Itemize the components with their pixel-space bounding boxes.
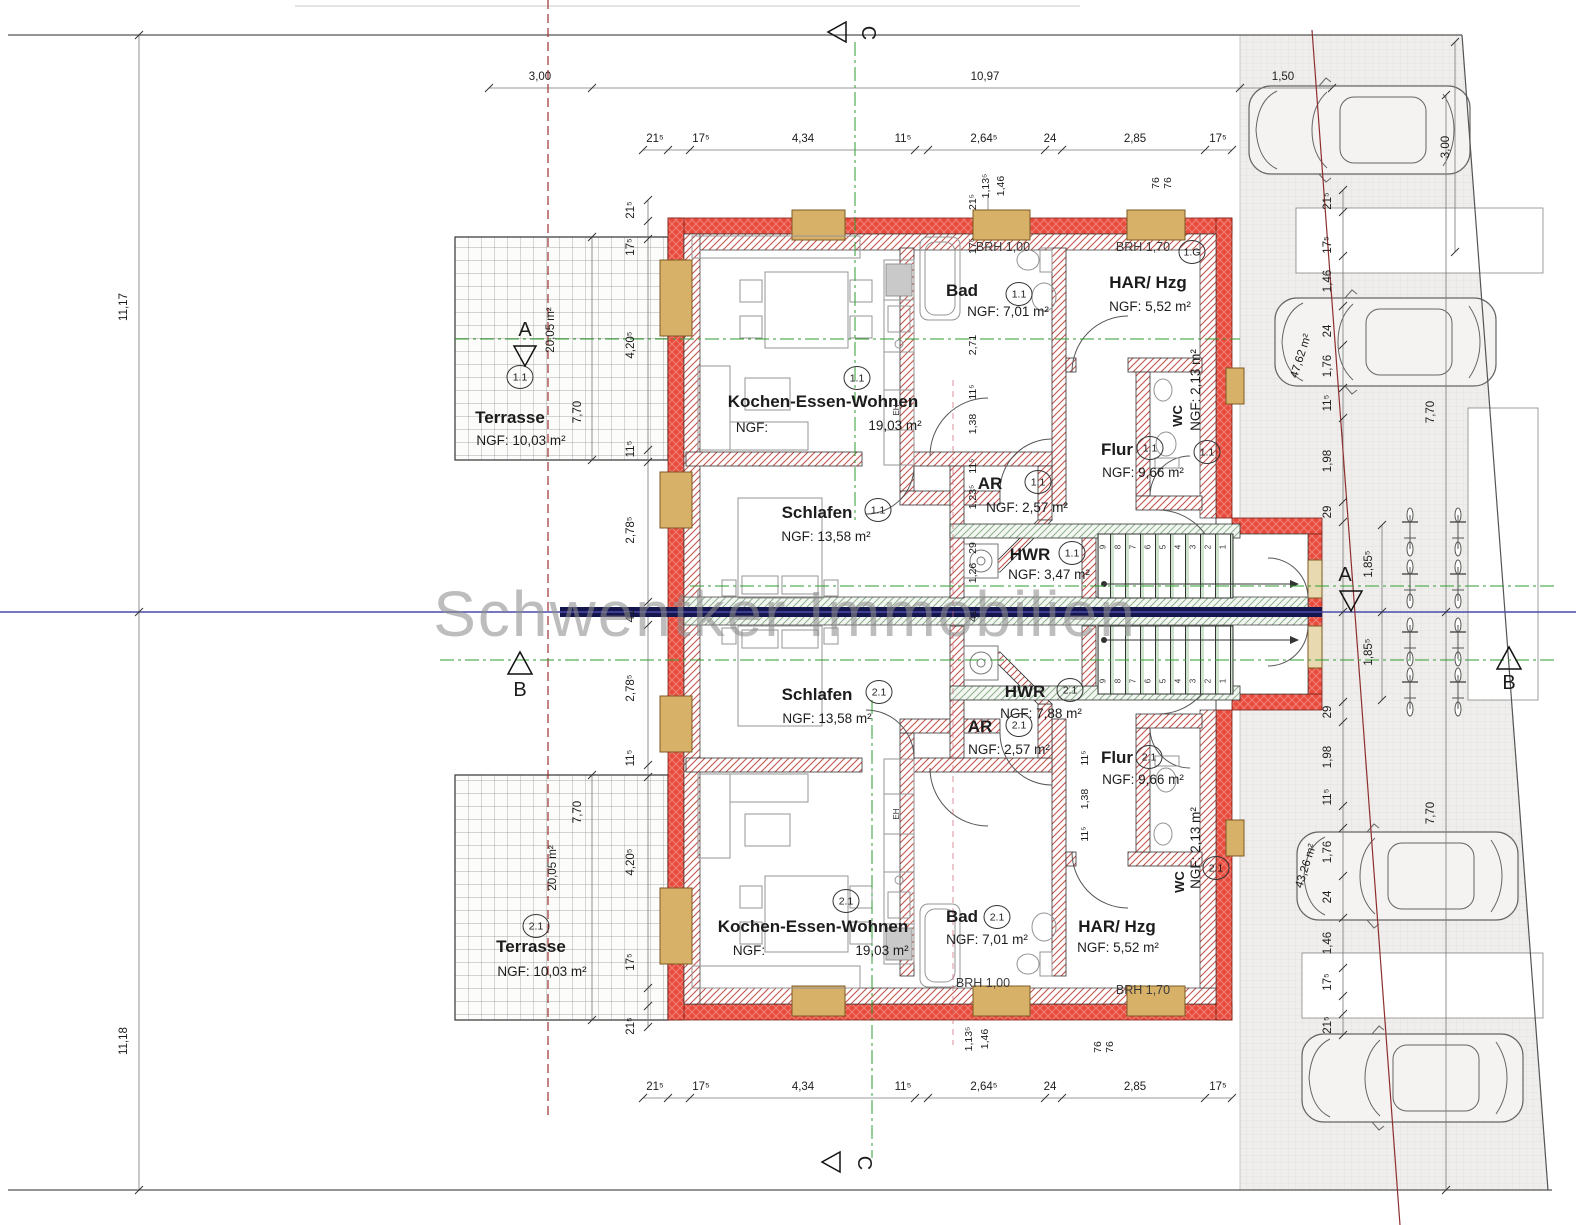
stair-step-number: 8 [1114, 678, 1123, 683]
room-kew1-ngf-label: NGF: [736, 420, 768, 435]
stair-step-number: 7 [1129, 678, 1138, 683]
unit-marker-label: 2.1 [529, 921, 544, 933]
dimension-label: 11⁵ [967, 458, 979, 473]
section-letter-b: B [513, 679, 526, 701]
section-letter-c: C [857, 26, 879, 40]
dimension-label: 4,20⁵ [625, 331, 637, 358]
parking-divider-strip [1468, 408, 1538, 700]
dim-left-upper: 11,17 [118, 293, 130, 321]
dimension-label: 21⁵ [1322, 192, 1334, 210]
room-flur1-name: Flur [1101, 440, 1133, 459]
room-bad1-name: Bad [946, 281, 978, 300]
stair-step-number: 9 [1099, 544, 1108, 549]
room-kew1-area: 19,03 m² [868, 418, 922, 433]
dimension-label: 17⁵ [625, 953, 637, 971]
room-bad2-ngf: NGF: 7,01 m² [946, 932, 1028, 947]
stair-step-number: 1 [1219, 544, 1228, 549]
room-terrasse1-ngf: NGF: 10,03 m² [476, 433, 566, 448]
unit-marker-label: 2.1 [839, 896, 854, 908]
room-terrasse2-ngf: NGF: 10,03 m² [497, 964, 587, 979]
terrace1-gross-area: 20,05 m² [545, 307, 557, 353]
watermark: Schwentker Immobilien [433, 578, 1137, 650]
dimension-label: 17⁵ [1209, 133, 1227, 145]
unit-marker-label: 2.1 [1063, 685, 1078, 697]
dimension-label: 2,78⁵ [625, 516, 637, 543]
dimension-label: 4,20⁵ [625, 848, 637, 875]
car-icon [1302, 1026, 1523, 1130]
room-terrasse2-name: Terrasse [496, 937, 566, 956]
dimension-label: 1,46 [1322, 932, 1334, 954]
terrace-2 [455, 775, 668, 1020]
dimension-label: 76 [1162, 177, 1174, 189]
stair-step-number: 7 [1129, 544, 1138, 549]
stair-step-number: 5 [1159, 678, 1168, 683]
dimension-label: 11⁵ [895, 1081, 912, 1093]
dimension-label: 24 [1322, 890, 1334, 903]
parking-divider-strip [1302, 953, 1543, 1018]
window-sill-har1: BRH 1,70 [1116, 240, 1170, 254]
dimension-label: 4,34 [792, 1081, 815, 1093]
room-ar1-ngf: NGF: 2,57 m² [986, 500, 1068, 515]
unit-marker-label: 2.1 [990, 912, 1005, 924]
floor-plan-canvas: 21⁵17⁵4,3411⁵2,64⁵242,8517⁵21⁵17⁵4,3411⁵… [0, 0, 1576, 1225]
room-hwr1-name: HWR [1010, 545, 1051, 564]
dimension-label: 24 [1044, 1081, 1057, 1093]
dimension-label: 11⁵ [1079, 826, 1091, 841]
dimension-label: 1,13⁵ [980, 174, 992, 199]
stair-step-number: 8 [1114, 544, 1123, 549]
stair-step-number: 4 [1174, 544, 1183, 549]
dimension-label: 21⁵ [646, 133, 664, 145]
section-marker-b-left: B [508, 652, 532, 701]
terrace2-gross-area: 20,05 m² [547, 845, 559, 891]
dim-site-width-left: 3,00 [529, 71, 551, 83]
dimension-label: 1,76 [1322, 841, 1334, 863]
unit-marker-label: 1.1 [1012, 289, 1027, 301]
dimension-label: 1,85⁵ [1363, 638, 1375, 665]
dimension-label: 76 [1092, 1041, 1104, 1053]
dimension-label: 11⁵ [1079, 750, 1091, 765]
stair-step-number: 4 [1174, 678, 1183, 683]
section-triangle-icon [508, 652, 532, 674]
room-ar1-name: AR [978, 474, 1003, 493]
dimension-label: 76 [1104, 1041, 1116, 1053]
room-wc1-name: WC [1170, 405, 1185, 427]
dimension-label: 17⁵ [692, 1081, 710, 1093]
room-kew2-area: 19,03 m² [855, 943, 909, 958]
room-kew2-ngf-label: NGF: [733, 943, 765, 958]
dimension-label: 2,85 [1124, 1081, 1146, 1093]
room-schlafen1-name: Schlafen [782, 503, 853, 522]
section-triangle-icon [828, 22, 846, 42]
section-triangle-icon [822, 1152, 840, 1172]
unit-marker-label: 1.1 [871, 505, 886, 517]
room-terrasse1-name: Terrasse [475, 408, 545, 427]
dimension-label: 17⁵ [692, 133, 710, 145]
room-flur2-name: Flur [1101, 748, 1133, 767]
room-flur2-ngf: NGF: 9,66 m² [1102, 772, 1184, 787]
dimension-label: 2,85 [1124, 133, 1146, 145]
unit-marker-label: 1.1 [1200, 447, 1215, 459]
washer-icon [964, 646, 998, 680]
stair-step-number: 9 [1099, 678, 1108, 683]
section-marker-c-top: C [828, 22, 879, 42]
dim-parking-depth-bottom: 7,70 [1425, 802, 1437, 824]
unit-marker-label: 2.1 [1142, 752, 1157, 764]
room-har1-ngf: NGF: 5,52 m² [1109, 299, 1191, 314]
room-schlafen2-name: Schlafen [782, 685, 853, 704]
stair-step-number: 3 [1189, 544, 1198, 549]
dimension-label: 11⁵ [1322, 788, 1334, 805]
section-marker-c-bottom: C [822, 1152, 875, 1172]
dimension-label: 17⁵ [1322, 236, 1334, 254]
dimension-label: 17⁵ [1209, 1081, 1227, 1093]
dimension-label: 1,85⁵ [1363, 550, 1375, 577]
dimension-label: 1,46 [979, 1029, 991, 1050]
dimension-label: 4,34 [792, 133, 815, 145]
room-bad2-name: Bad [946, 907, 978, 926]
unit-marker-label: 1.1 [850, 373, 865, 385]
stair-step-number: 1 [1219, 678, 1228, 683]
stove-label-2: EH [892, 808, 901, 819]
stair-step-number: 5 [1159, 544, 1168, 549]
unit-marker-label: 1.1 [1031, 477, 1046, 489]
room-hwr2-name: HWR [1005, 682, 1046, 701]
dimension-label: 1,46 [995, 176, 1007, 197]
window-sill-har2: BRH 1,70 [1116, 983, 1170, 997]
dimension-label: 17⁵ [1322, 973, 1334, 991]
section-letter-a: A [518, 319, 532, 341]
unit-marker-label: 1.1 [1065, 548, 1080, 560]
unit-marker-label: 1.1 [1143, 443, 1158, 455]
dimension-label: 21⁵ [646, 1081, 664, 1093]
dimension-label: 29 [967, 542, 979, 554]
dimension-label: 11⁵ [895, 133, 912, 145]
dimension-label: 1,98 [1322, 450, 1334, 472]
room-kew1-name: Kochen-Essen-Wohnen [728, 392, 918, 411]
room-har2-ngf: NGF: 5,52 m² [1077, 940, 1159, 955]
dim-right-vertical: 3,00 [1440, 136, 1452, 158]
dimension-label: 2,78⁵ [625, 674, 637, 701]
dimension-label: 21⁵ [625, 1017, 637, 1035]
dimension-label: 2,71 [967, 335, 979, 356]
room-har2-name: HAR/ Hzg [1078, 917, 1155, 936]
room-schlafen1-ngf: NGF: 13,58 m² [781, 529, 871, 544]
window-sill-bad2: BRH 1,00 [956, 976, 1010, 990]
dimension-label: 1,98 [1322, 746, 1334, 768]
room-wc2-ngf: NGF: 2,13 m² [1188, 807, 1203, 889]
window-sill-bad1: BRH 1,00 [976, 240, 1030, 254]
dimension-label: 11⁵ [625, 440, 637, 457]
section-letter-b: B [1502, 672, 1515, 694]
dimension-label: 21⁵ [967, 194, 979, 210]
dimension-label: 1,13⁵ [963, 1027, 975, 1052]
dimension-label: 1,38 [1079, 789, 1091, 810]
dimension-label: 76 [1150, 177, 1162, 189]
room-schlafen2-ngf: NGF: 13,58 m² [782, 711, 872, 726]
dimension-label: 1,76 [1322, 355, 1334, 377]
room-bad1-ngf: NGF: 7,01 m² [967, 304, 1049, 319]
dim-terrace1-depth: 7,70 [572, 401, 584, 423]
stair-step-number: 6 [1144, 544, 1153, 549]
room-har1-name: HAR/ Hzg [1109, 273, 1186, 292]
dim-left-lower: 11,18 [118, 1027, 130, 1055]
unit-marker-label: 1.1 [513, 372, 528, 384]
dim-terrace2-depth: 7,70 [572, 801, 584, 823]
dim-site-width-main: 10,97 [971, 71, 1000, 83]
floor-plan-drawing: 21⁵17⁵4,3411⁵2,64⁵242,8517⁵21⁵17⁵4,3411⁵… [0, 0, 1576, 1225]
room-wc2-name: WC [1172, 871, 1187, 893]
stair-step-number: 6 [1144, 678, 1153, 683]
dimension-label: 2,64⁵ [970, 1081, 997, 1093]
stair-step-number: 3 [1189, 678, 1198, 683]
dimension-label: 1,46 [1322, 270, 1334, 292]
dimension-label: 11⁵ [967, 384, 979, 399]
dimension-label: 21⁵ [625, 201, 637, 219]
dimension-label: 21⁵ [1322, 1016, 1334, 1034]
dimension-label: 29 [1322, 706, 1334, 719]
room-kew2-name: Kochen-Essen-Wohnen [718, 917, 908, 936]
dim-site-top-right: 1,50 [1272, 71, 1294, 83]
dimension-label: 11⁵ [625, 749, 637, 766]
room-flur1-ngf: NGF: 9,66 m² [1102, 465, 1184, 480]
dimension-label: 24 [1044, 133, 1057, 145]
dim-parking-depth-top: 7,70 [1425, 401, 1437, 423]
dimension-label: 2,64⁵ [970, 133, 997, 145]
stair-step-number: 2 [1204, 544, 1213, 549]
car-icon [1297, 824, 1518, 928]
unit-marker-label: 1.G [1184, 247, 1201, 259]
section-letter-c: C [853, 1156, 875, 1170]
unit-marker-label: 2.1 [1209, 863, 1224, 875]
unit-marker-label: 2.1 [1012, 720, 1027, 732]
dimension-label: 24 [1322, 324, 1334, 337]
room-wc1-ngf: NGF: 2,13 m² [1188, 349, 1203, 431]
car-icon [1249, 78, 1470, 182]
room-ar2-name: AR [968, 717, 993, 736]
stair-step-number: 2 [1204, 678, 1213, 683]
dimension-label: 1,38 [967, 414, 979, 435]
stove-label-1: EH [892, 404, 901, 415]
dimension-label: 11⁵ [1322, 394, 1334, 411]
section-letter-a: A [1338, 564, 1352, 586]
room-ar2-ngf: NGF: 2,57 m² [968, 742, 1050, 757]
unit-marker-label: 2.1 [872, 687, 887, 699]
dimension-label: 17⁵ [625, 238, 637, 256]
dimension-label: 29 [1322, 506, 1334, 519]
